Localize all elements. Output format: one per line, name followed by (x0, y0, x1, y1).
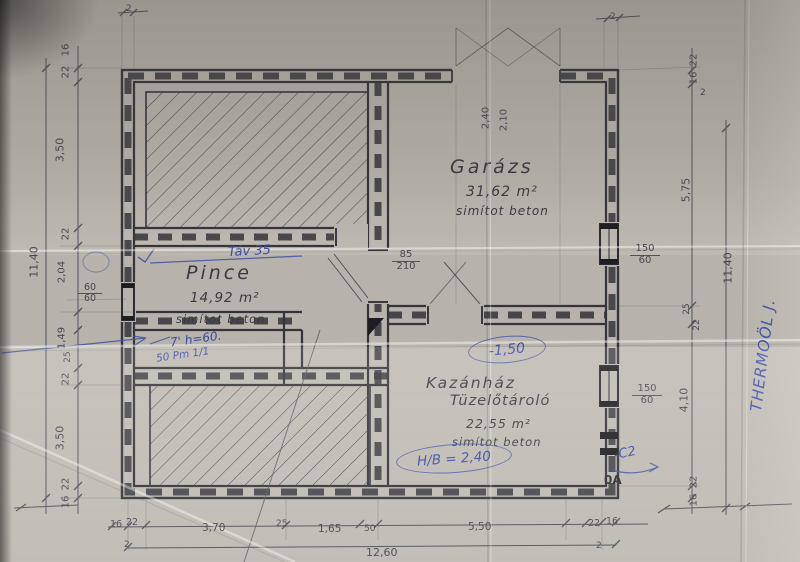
dim-bottom-1: 22 (126, 517, 138, 528)
dim-bottom-0: 16 (110, 519, 122, 530)
dim-window-kazanhaz-right: 150 60 (632, 384, 662, 406)
room-label-pince: Pince (186, 262, 252, 284)
dim-left-2: 3,50 (54, 138, 67, 163)
dim-left-3: 22 (61, 228, 72, 241)
corner-mark: 0A (604, 473, 622, 487)
dim-garage-door-width: 2,40 (481, 107, 492, 129)
room-floor-garage: simítot beton (456, 204, 549, 218)
dim-window-left: 60 60 (78, 283, 102, 304)
scanned-floor-plan-photo: Garázs 31,62 m² simítot beton Pince 14,9… (0, 0, 800, 562)
dim-bottom-small-left: 2 (124, 540, 130, 550)
room-label-kazanhaz-line2: Tüzelőtároló (450, 393, 550, 409)
floor-plan-drawing (0, 0, 800, 562)
dim-left-7: 22 (61, 373, 72, 386)
handwritten-tav: Táv 35 (228, 243, 272, 260)
dim-pince-door-height: 210 (392, 262, 420, 273)
handwritten-hb: H/B = 2,40 (417, 448, 492, 469)
dim-right-7: 16 (689, 494, 700, 507)
dim-window-garage-right-height: 60 (630, 256, 660, 267)
dim-right-4: 22 (692, 319, 702, 330)
dim-window-kazanhaz-right-height: 60 (632, 396, 662, 407)
handwritten-level: -1,50 (488, 340, 525, 359)
paper-creases (0, 0, 800, 562)
dim-bottom-4: 1,65 (318, 523, 341, 535)
dim-bottom-2: 3,70 (202, 522, 225, 534)
room-area-kazanhaz: 22,55 m² (466, 416, 531, 431)
dim-right-1: 16 (689, 72, 700, 85)
room-area-garage: 31,62 m² (466, 184, 538, 200)
dim-right-total: 11,40 (722, 252, 735, 284)
dim-left-6: 25 (63, 351, 73, 362)
dim-bottom-small-right: 2 (596, 541, 602, 551)
dim-window-garage-right: 150 60 (630, 244, 660, 266)
dim-pince-door-width: 85 (392, 250, 420, 262)
dim-right-5: 4,10 (678, 388, 691, 413)
dim-top-small-right: 2 (610, 12, 616, 22)
dim-window-garage-right-width: 150 (630, 244, 660, 256)
room-label-kazanhaz-line1: Kazánház (426, 374, 516, 392)
dim-bottom-total: 12,60 (366, 546, 398, 559)
dim-left-10: 16 (61, 496, 72, 509)
dim-left-total: 11,40 (28, 246, 41, 278)
dim-right-2: 5,75 (680, 178, 693, 203)
dim-right-6: 22 (689, 476, 700, 489)
dim-window-left-height: 60 (78, 294, 102, 304)
dim-pince-door: 85 210 (392, 250, 420, 272)
dim-bottom-5: 50 (364, 524, 375, 534)
dim-right-small: 2 (700, 88, 706, 98)
hatched-area-bottom-left (150, 385, 370, 486)
dim-bottom-3: 25 (276, 519, 287, 529)
room-label-garage: Garázs (450, 156, 534, 178)
dim-bottom-7: 22 (588, 518, 600, 529)
dim-left-5: 1,49 (57, 327, 68, 349)
room-floor-pince: simítot beton (176, 312, 266, 326)
dim-bottom-6: 5,50 (468, 521, 491, 533)
room-area-pince: 14,92 m² (190, 290, 260, 306)
dim-right-3: 25 (682, 303, 692, 314)
dim-window-kazanhaz-right-width: 150 (632, 384, 662, 396)
dim-left-8: 3,50 (54, 426, 67, 451)
dim-left-9: 22 (61, 478, 72, 491)
dim-right-0: 22 (689, 54, 700, 67)
dim-garage-door-height: 2,10 (499, 109, 510, 131)
dim-bottom-8: 16 (606, 516, 618, 527)
dim-left-1: 22 (61, 66, 72, 79)
dim-top-small-left: 2 (126, 4, 132, 14)
dim-left-4: 2,04 (57, 261, 68, 283)
dim-left-0: 16 (61, 44, 72, 57)
hatched-area-top-left (146, 92, 368, 228)
